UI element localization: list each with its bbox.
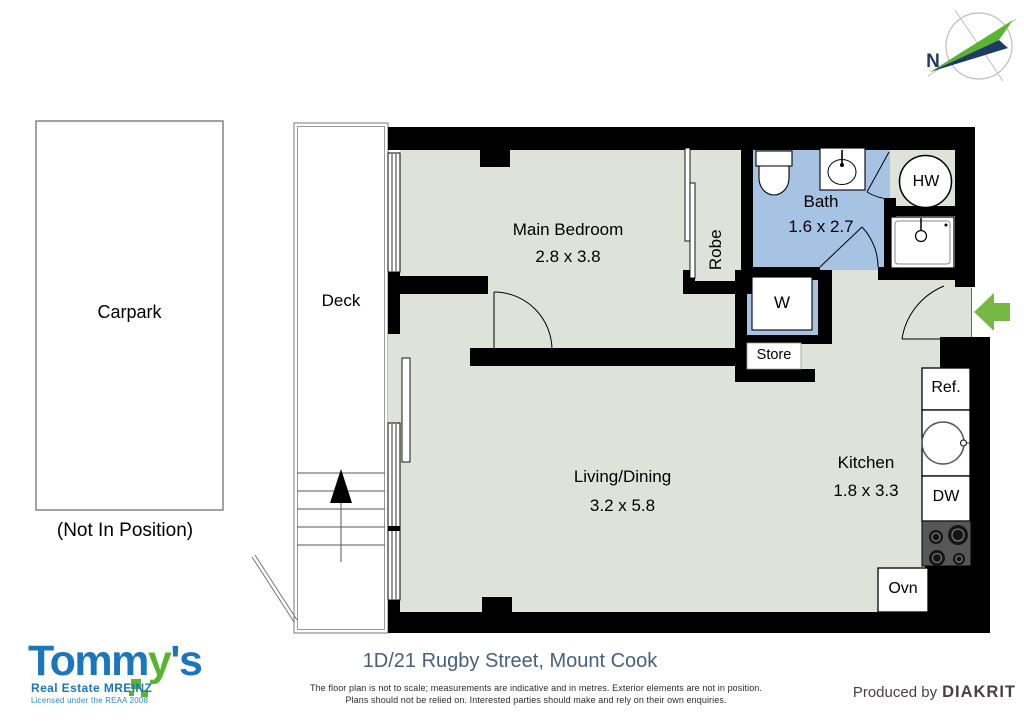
- logo-license: Licensed under the REAA 2008: [31, 697, 231, 706]
- kitchen-label: Kitchen: [790, 453, 942, 473]
- producer-name: DIAKRIT: [942, 683, 1016, 701]
- disclaimer-line-2: Plans should not be relied on. Intereste…: [280, 695, 792, 705]
- carpark-label: Carpark: [36, 302, 223, 323]
- washer-label: W: [752, 293, 812, 313]
- address-title: 1D/21 Rugby Street, Mount Cook: [300, 650, 720, 673]
- store-label: Store: [745, 347, 803, 364]
- cooktop-icon: [922, 521, 971, 566]
- logo-text-s: 's: [170, 637, 201, 685]
- fridge-label: Ref.: [922, 379, 970, 397]
- floor-plan-page: Carpark (Not In Position) Deck Main Bedr…: [0, 0, 1024, 724]
- living-dining-label: Living/Dining: [495, 467, 750, 487]
- entry-arrow-icon: [974, 293, 1010, 331]
- basin-icon: [820, 148, 865, 190]
- tommys-logo: Tommy's: [28, 640, 248, 683]
- carpark-note: (Not In Position): [15, 520, 235, 542]
- robe-label: Robe: [706, 200, 726, 300]
- kitchen-dims: 1.8 x 3.3: [790, 481, 942, 501]
- logo-text-y: y: [148, 637, 170, 685]
- oven-label: Ovn: [878, 580, 928, 598]
- floor-plan-drawing: [0, 0, 1024, 724]
- logo-text-tomm: Tomm: [28, 637, 148, 685]
- produced-by: Produced byDIAKRIT: [790, 683, 1016, 702]
- compass-north-label: N: [920, 51, 946, 73]
- dishwasher-label: DW: [922, 488, 970, 506]
- logo-tagline: Real Estate MREINZ: [31, 682, 231, 696]
- gate-line: [252, 555, 297, 622]
- shower-icon: [891, 217, 954, 268]
- bath-dims: 1.6 x 2.7: [755, 217, 887, 237]
- disclaimer-line-1: The floor plan is not to scale; measurem…: [280, 683, 792, 693]
- bath-label: Bath: [755, 192, 887, 212]
- produced-by-text: Produced by: [853, 684, 937, 701]
- main-bedroom-dims: 2.8 x 3.8: [448, 247, 688, 267]
- living-dining-dims: 3.2 x 5.8: [495, 496, 750, 516]
- deck-label: Deck: [294, 291, 388, 311]
- hot-water-label: HW: [896, 173, 956, 191]
- main-bedroom-label: Main Bedroom: [448, 220, 688, 240]
